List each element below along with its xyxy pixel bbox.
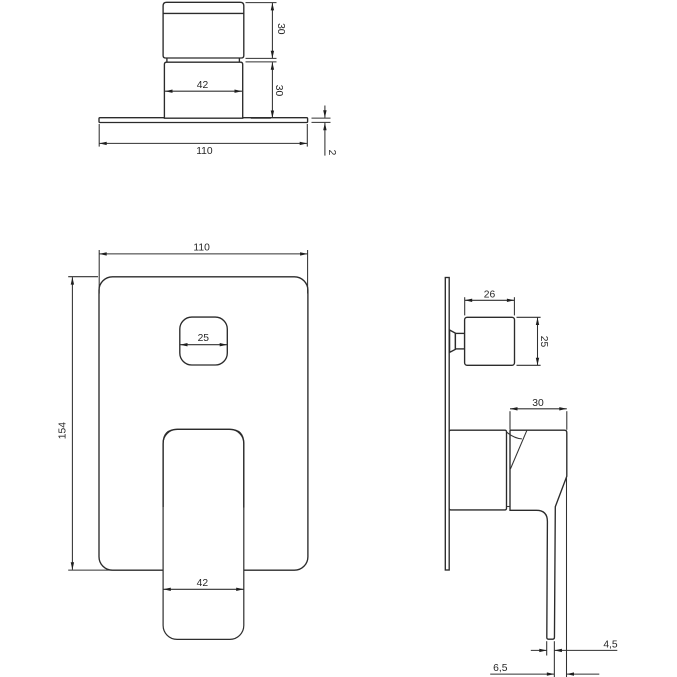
svg-text:26: 26 bbox=[484, 289, 496, 300]
svg-text:4,5: 4,5 bbox=[603, 640, 618, 651]
svg-text:110: 110 bbox=[193, 243, 210, 254]
svg-text:30: 30 bbox=[273, 85, 284, 97]
svg-text:154: 154 bbox=[57, 422, 68, 439]
svg-text:110: 110 bbox=[196, 146, 213, 157]
svg-text:25: 25 bbox=[538, 336, 549, 348]
svg-text:2: 2 bbox=[326, 150, 337, 156]
svg-text:30: 30 bbox=[275, 23, 286, 35]
svg-text:6,5: 6,5 bbox=[493, 663, 508, 674]
svg-text:42: 42 bbox=[197, 80, 209, 91]
svg-text:30: 30 bbox=[532, 398, 544, 409]
svg-text:25: 25 bbox=[198, 333, 210, 344]
svg-text:42: 42 bbox=[197, 578, 209, 589]
